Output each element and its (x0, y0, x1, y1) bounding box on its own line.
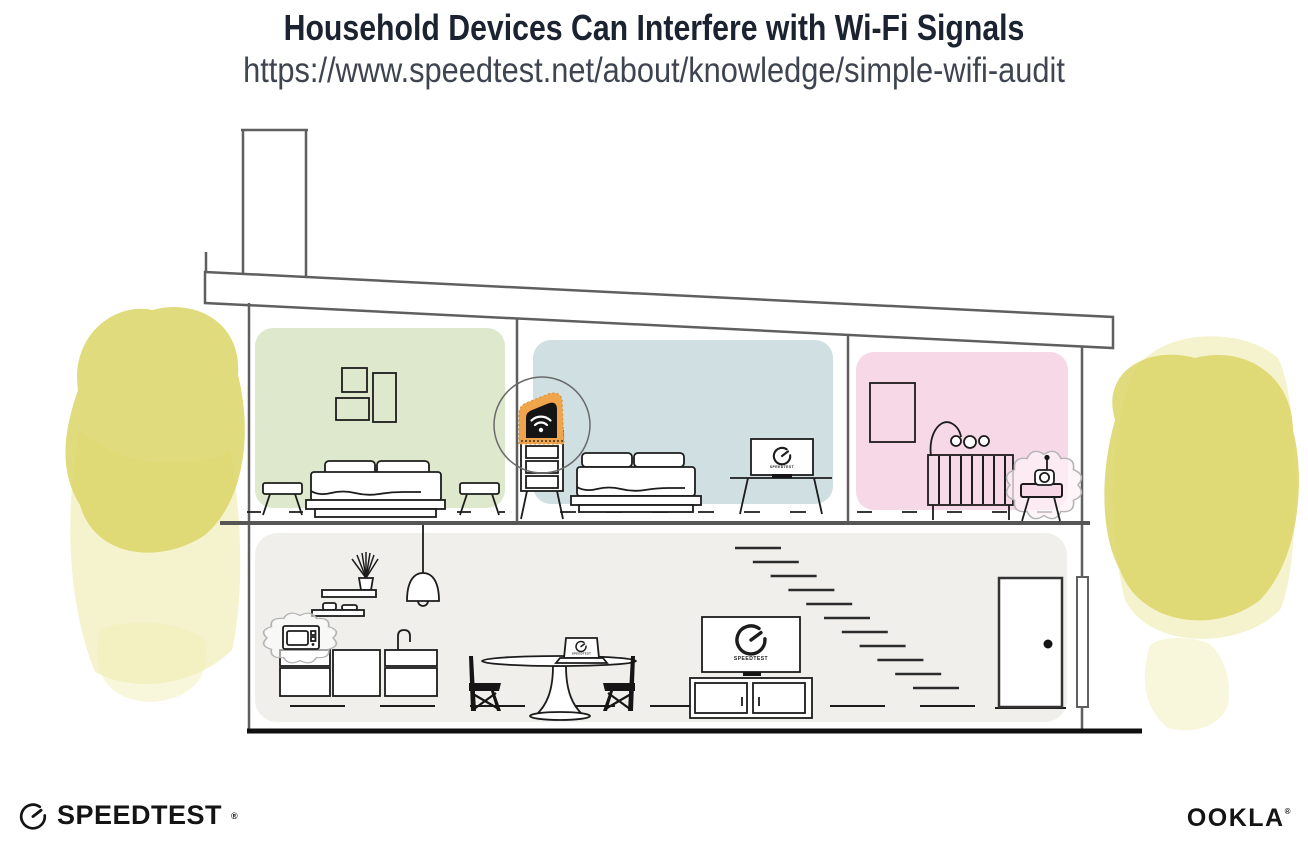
living-room: SPEEDTEST (690, 617, 812, 718)
crib-mobile-icon (964, 436, 976, 448)
tv: SPEEDTEST (702, 617, 800, 676)
ookla-logo: OOKLA® (1187, 804, 1292, 833)
bed (306, 461, 445, 517)
tree-right (1104, 336, 1299, 730)
tree-right-wash-bottom (1145, 638, 1229, 730)
media-console (690, 678, 812, 718)
crib-mobile-icon (979, 436, 989, 446)
tree-left (65, 307, 244, 702)
laptop-speedtest-label: SPEEDTEST (572, 652, 591, 656)
speedtest-wordmark: SPEEDTEST (57, 800, 222, 831)
ookla-registered-mark: ® (1285, 807, 1292, 816)
bed (571, 453, 701, 512)
tree-left-wash-bottom (97, 623, 206, 702)
crib-mobile-icon (951, 436, 961, 446)
desktop-monitor: SPEEDTEST (751, 439, 813, 478)
infographic-page: Household Devices Can Interfere with Wi-… (0, 0, 1308, 861)
ookla-wordmark: OOKLA (1187, 804, 1285, 832)
tree-right-crown (1104, 355, 1299, 621)
tree-left-crown (65, 307, 244, 553)
side-window (1077, 577, 1088, 707)
plant-pot (359, 578, 373, 590)
speedtest-logo: SPEEDTEST® (18, 800, 238, 831)
chimney (241, 130, 308, 278)
microwave (283, 626, 319, 649)
monitor-speedtest-label: SPEEDTEST (770, 465, 795, 469)
house-cross-section-illustration: SPEEDTEST (0, 0, 1308, 861)
door-knob (1044, 640, 1053, 649)
speedtest-registered-mark: ® (231, 811, 238, 821)
speedtest-gauge-icon (18, 801, 48, 831)
front-door (999, 578, 1062, 707)
tv-speedtest-label: SPEEDTEST (734, 656, 768, 662)
bowl (323, 603, 336, 610)
